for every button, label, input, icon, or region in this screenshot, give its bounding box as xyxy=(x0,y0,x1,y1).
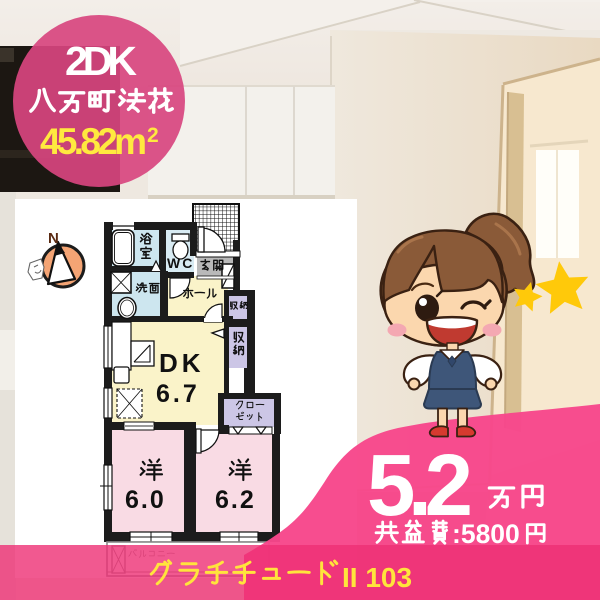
svg-text:2: 2 xyxy=(147,124,159,147)
svg-text:II 103: II 103 xyxy=(342,562,412,593)
svg-text:N: N xyxy=(48,230,59,247)
svg-text:6.7: 6.7 xyxy=(156,380,200,408)
svg-text:2DK: 2DK xyxy=(65,38,137,84)
svg-text:6.2: 6.2 xyxy=(215,486,256,514)
svg-text::5800: :5800 xyxy=(452,519,520,549)
svg-text:6.0: 6.0 xyxy=(125,486,166,514)
svg-text:DK: DK xyxy=(159,348,205,378)
svg-text:45.82m: 45.82m xyxy=(40,121,147,162)
svg-text:WC: WC xyxy=(167,255,194,271)
